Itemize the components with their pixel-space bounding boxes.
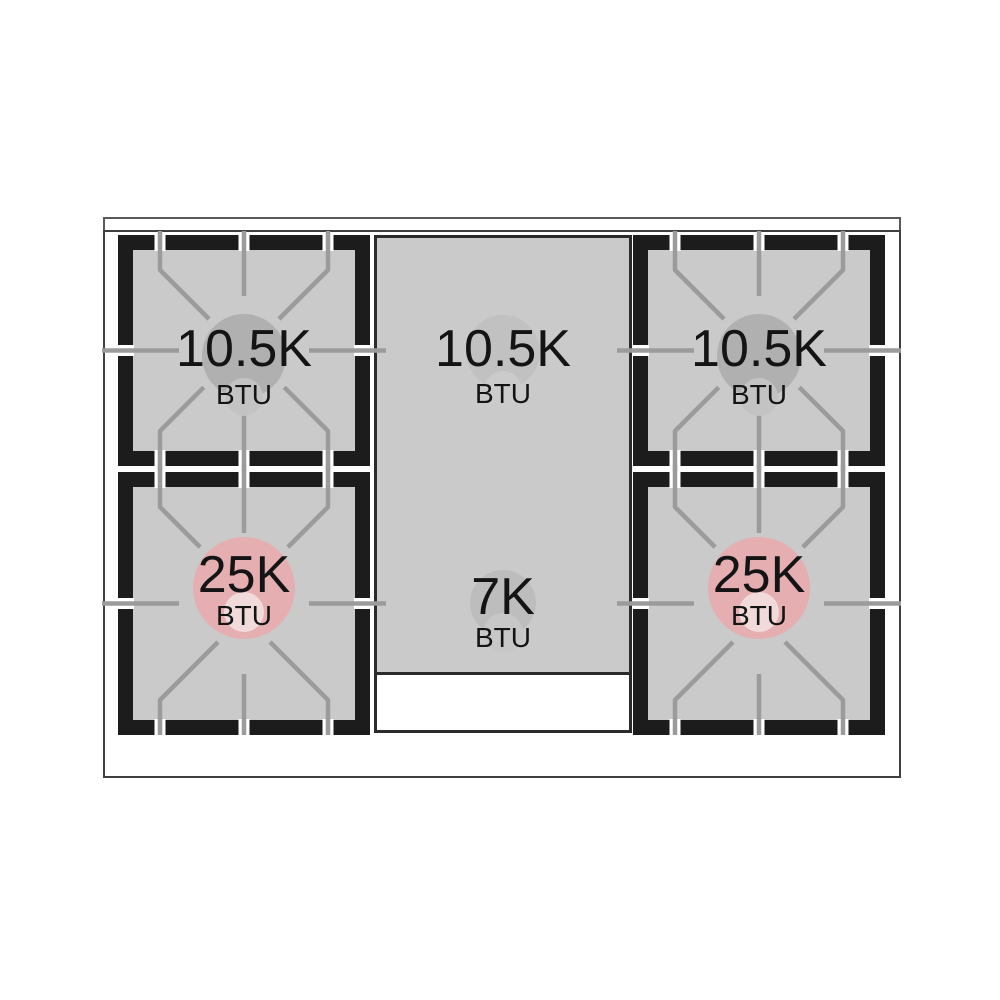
burner-value-front-right: 25K xyxy=(713,549,806,601)
burner-unit-front-center: BTU xyxy=(475,624,531,652)
burner-unit-rear-center: BTU xyxy=(475,380,531,408)
center-griddle-panel xyxy=(374,235,632,733)
burner-value-front-left: 25K xyxy=(198,549,291,601)
burner-unit-rear-right: BTU xyxy=(731,381,787,409)
burner-unit-front-left: BTU xyxy=(216,602,272,630)
burner-value-rear-right: 10.5K xyxy=(691,323,827,375)
burner-value-rear-center: 10.5K xyxy=(435,323,571,375)
cooktop-diagram: 10.5K BTU 10.5K BTU 10.5K BTU 25K BTU 7K… xyxy=(0,0,1000,1000)
burner-value-front-center: 7K xyxy=(471,571,535,623)
center-panel-front-strip xyxy=(377,672,629,730)
burner-unit-front-right: BTU xyxy=(731,602,787,630)
burner-value-rear-left: 10.5K xyxy=(176,323,312,375)
burner-unit-rear-left: BTU xyxy=(216,381,272,409)
